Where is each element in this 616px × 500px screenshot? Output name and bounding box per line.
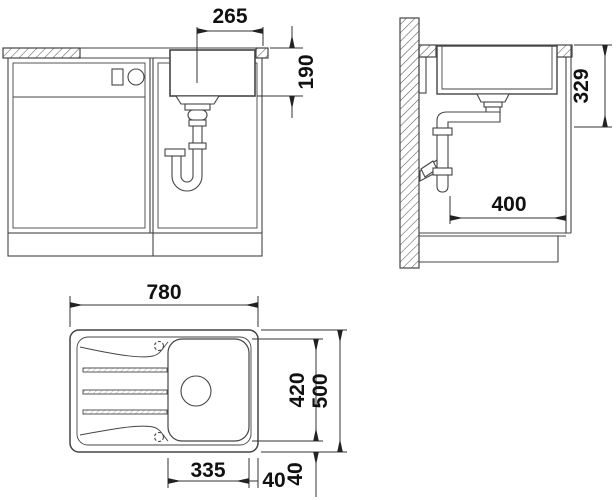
dim-190-label: 190: [295, 54, 318, 89]
dim-overall-length: 780: [70, 281, 258, 327]
dim-outlet-to-front: 400: [450, 193, 566, 224]
control-knob-icon: [128, 69, 144, 85]
dim-780-label: 780: [146, 281, 181, 304]
dim-265-label: 265: [212, 5, 247, 28]
cabinet-bottom-side: [419, 233, 571, 262]
plan-top-view: 780 420 500 40 335: [70, 281, 347, 497]
dim-40-right-label: 40: [262, 469, 285, 492]
sink-bowl-front-section: [170, 50, 255, 96]
appliance-front-panel: [13, 63, 145, 228]
dim-top-to-outlet: 329: [570, 45, 612, 127]
countertop-cut-hatch-left: [3, 48, 80, 58]
dim-overall-width: 500: [309, 330, 340, 452]
drain-hole-icon: [181, 376, 211, 406]
dim-400-label: 400: [491, 193, 526, 216]
back-rail: [419, 57, 426, 93]
dim-335-label: 335: [190, 459, 225, 482]
dim-420-label: 420: [286, 372, 309, 407]
side-section-view: 400 329: [400, 18, 612, 268]
dim-edge-gap-right: 40: [249, 458, 286, 492]
front-elevation-view: 265 190: [3, 5, 318, 256]
technical-drawing-canvas: 265 190: [0, 0, 616, 500]
dim-edge-gap-front: 40: [284, 452, 316, 497]
dim-500-label: 500: [309, 373, 332, 408]
drain-waste-side-icon: [420, 94, 509, 192]
dim-bowl-length: 335: [168, 458, 249, 488]
sink-dimension-drawing: 265 190: [0, 0, 616, 500]
dim-bowl-depth-front: 190: [257, 26, 318, 118]
drain-trap-front-icon: [165, 96, 219, 191]
dim-329-label: 329: [570, 68, 593, 103]
countertop-cut-hatch-right: [256, 48, 268, 58]
dim-40-front-label: 40: [284, 462, 307, 485]
plinth-front: [8, 233, 262, 256]
wall-section: [400, 18, 419, 268]
control-rect-icon: [112, 69, 123, 85]
sink-bowl-side-section: [437, 46, 557, 94]
drainboard-grooves: [80, 342, 168, 441]
bowl-plan: [168, 339, 249, 441]
